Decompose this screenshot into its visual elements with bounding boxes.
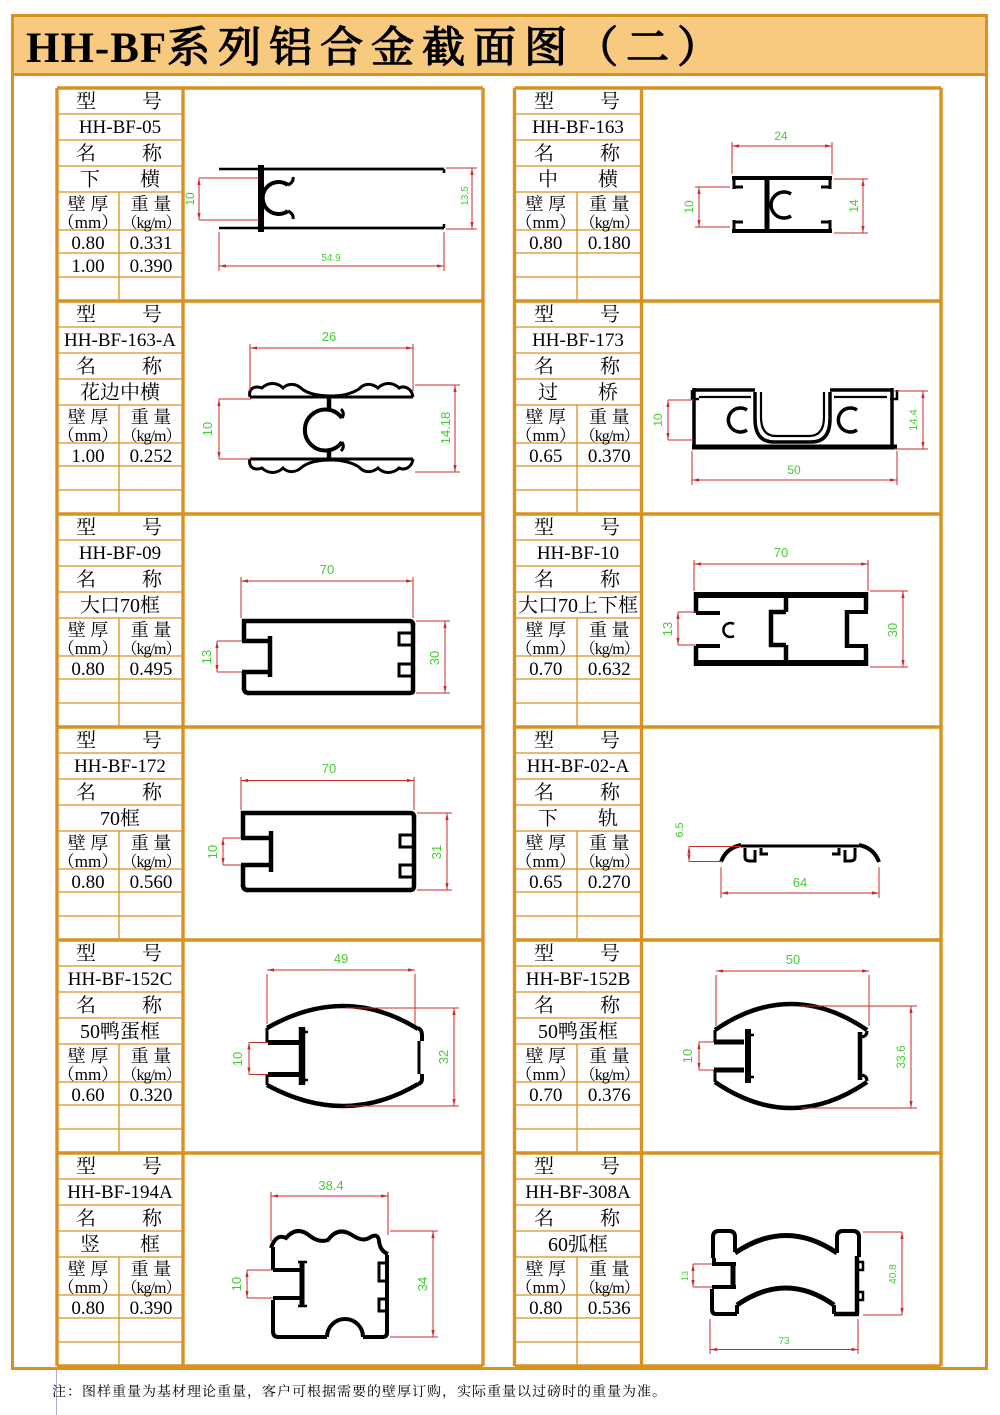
svg-text:13: 13 [660, 622, 675, 636]
svg-text:30: 30 [885, 623, 900, 637]
svg-text:64: 64 [793, 875, 807, 890]
svg-text:14: 14 [847, 199, 861, 213]
svg-text:24: 24 [774, 129, 788, 143]
svg-text:13: 13 [680, 1271, 690, 1281]
svg-text:10: 10 [230, 1052, 245, 1066]
svg-text:34: 34 [415, 1277, 430, 1291]
svg-text:14.4: 14.4 [908, 409, 920, 430]
svg-text:10: 10 [651, 413, 665, 427]
svg-text:13.5: 13.5 [460, 186, 471, 206]
svg-text:10: 10 [682, 200, 696, 214]
svg-text:26: 26 [322, 329, 336, 344]
svg-text:50: 50 [787, 463, 801, 477]
svg-text:54.9: 54.9 [321, 253, 341, 264]
svg-text:32: 32 [436, 1050, 451, 1064]
svg-text:13: 13 [199, 650, 214, 664]
svg-text:30: 30 [427, 651, 442, 665]
svg-text:10: 10 [183, 192, 197, 206]
svg-text:10: 10 [229, 1277, 244, 1291]
svg-text:70: 70 [774, 545, 788, 560]
svg-text:40.8: 40.8 [888, 1264, 899, 1284]
svg-text:6.5: 6.5 [674, 822, 686, 837]
svg-text:33.6: 33.6 [894, 1045, 908, 1069]
svg-text:10: 10 [200, 422, 215, 436]
svg-text:70: 70 [322, 761, 336, 776]
svg-text:70: 70 [320, 562, 334, 577]
svg-text:50: 50 [786, 952, 800, 967]
svg-text:10: 10 [680, 1049, 695, 1063]
svg-text:31: 31 [429, 845, 444, 859]
svg-text:14.18: 14.18 [438, 412, 453, 445]
svg-text:73: 73 [778, 1336, 790, 1347]
svg-text:38.4: 38.4 [318, 1178, 343, 1193]
svg-text:10: 10 [205, 845, 220, 859]
svg-text:49: 49 [334, 951, 348, 966]
